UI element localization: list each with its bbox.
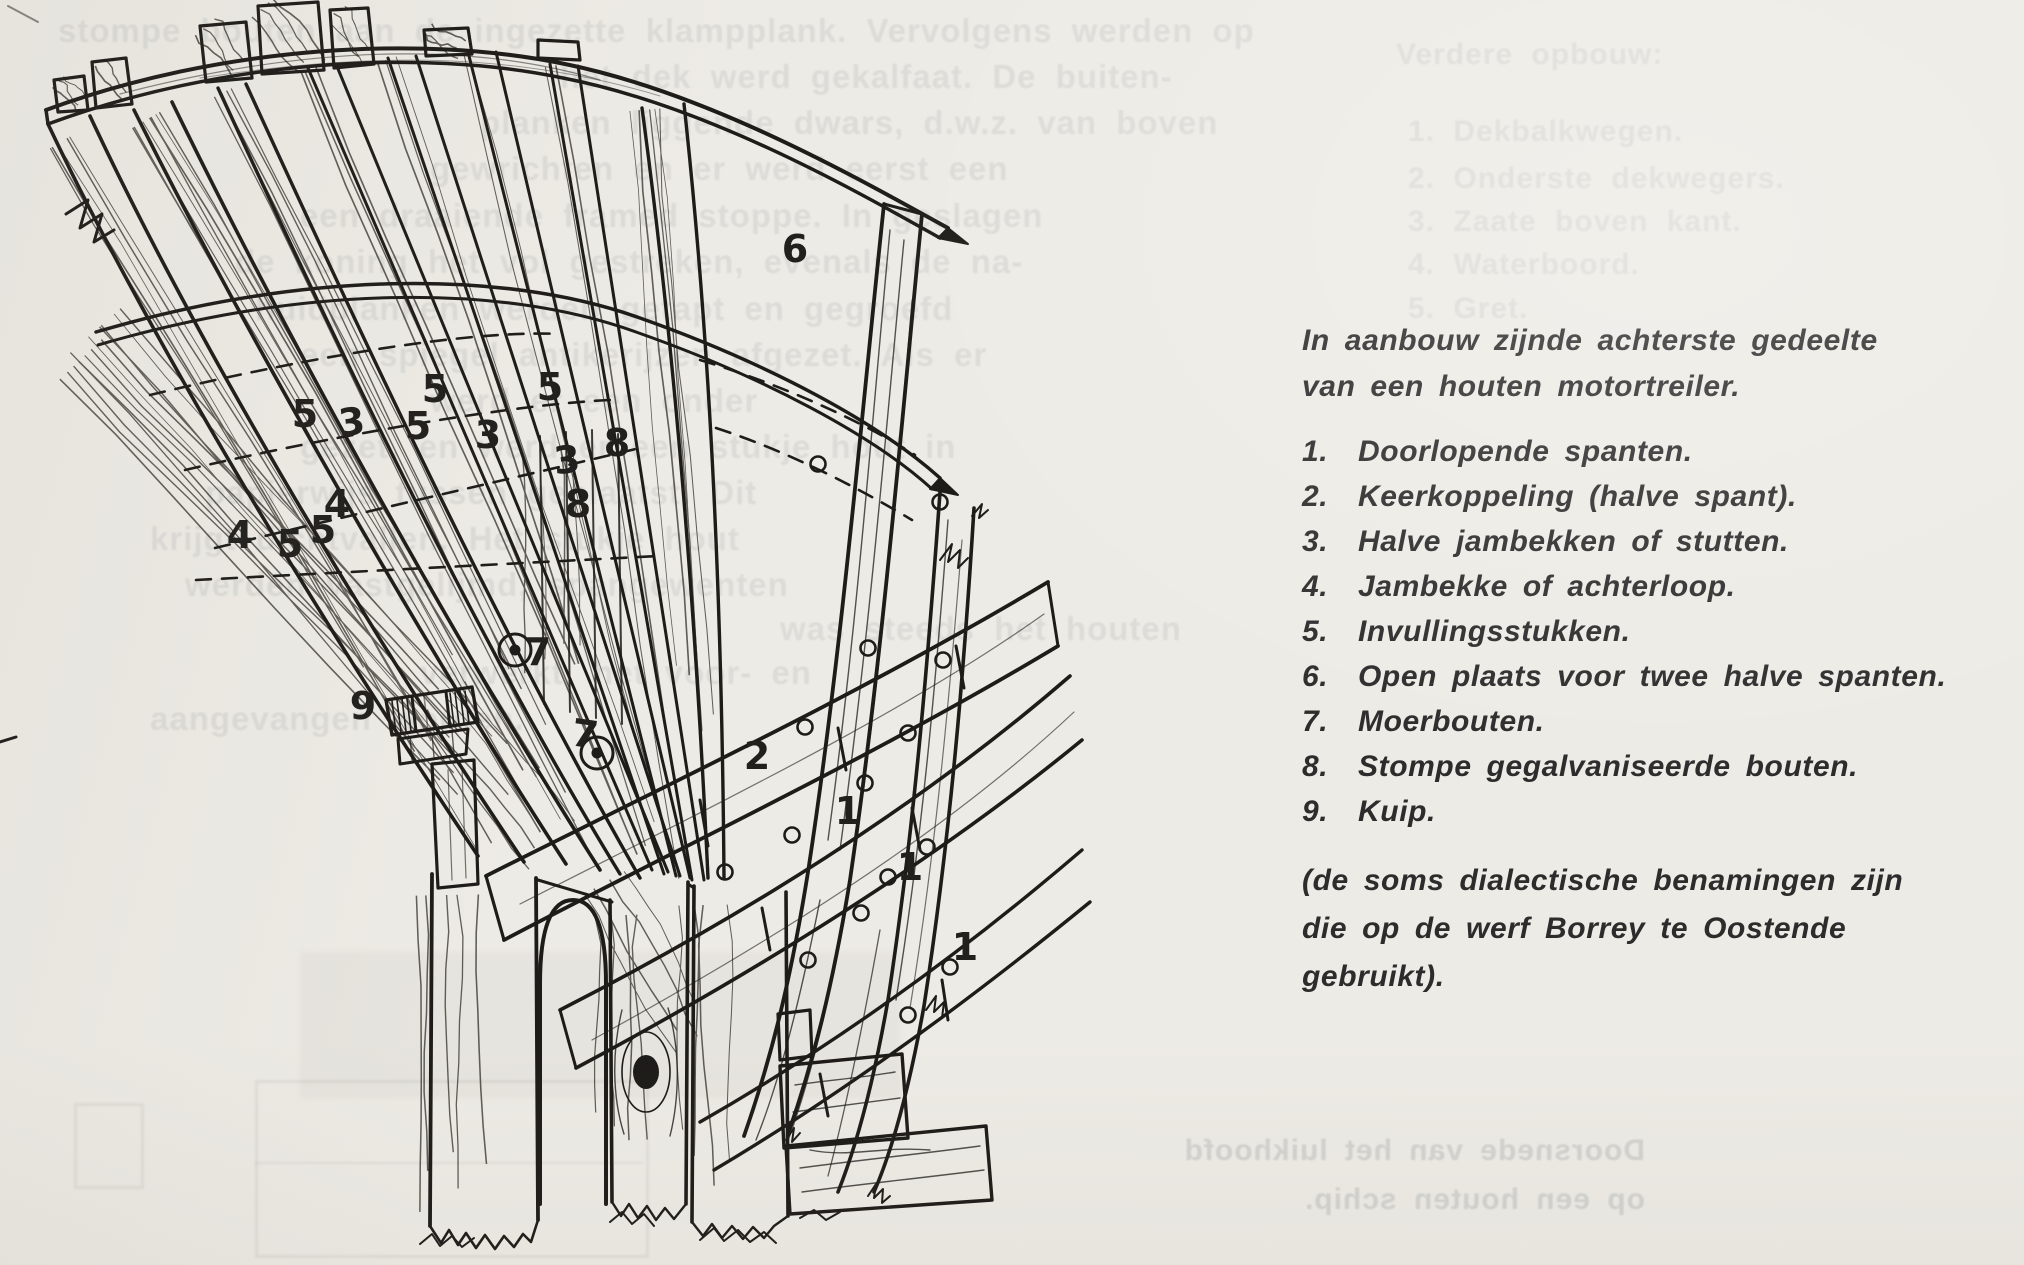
legend-list: 1.Doorlopende spanten. 2.Keerkoppeling (… bbox=[1302, 429, 1946, 834]
label-1: 1 bbox=[897, 845, 923, 889]
scan-scratch bbox=[8, 6, 38, 22]
legend-item: 1.Doorlopende spanten. bbox=[1302, 429, 1946, 474]
legend-item-text: Stompe gegalvaniseerde bouten. bbox=[1358, 744, 1858, 789]
legend-item-number: 7. bbox=[1302, 699, 1358, 744]
wood-grain-stroke bbox=[476, 894, 487, 1164]
wood-grain-stroke bbox=[626, 915, 632, 1140]
label-5: 5 bbox=[292, 392, 318, 436]
wood-grain-stroke bbox=[416, 896, 421, 1212]
legend-item-text: Open plaats voor twee halve spanten. bbox=[1358, 654, 1946, 699]
legend-item-number: 5. bbox=[1302, 609, 1358, 654]
legend-item-number: 1. bbox=[1302, 429, 1358, 474]
label-8: 8 bbox=[604, 421, 630, 465]
legend-item: 6.Open plaats voor twee halve spanten. bbox=[1302, 654, 1946, 699]
label-2: 2 bbox=[744, 734, 770, 778]
label-7: 7 bbox=[525, 630, 551, 674]
legend-item: 9.Kuip. bbox=[1302, 789, 1946, 834]
wood-grain-stroke bbox=[432, 24, 466, 41]
wood-grain-stroke bbox=[595, 916, 601, 1113]
frame-fan bbox=[48, 52, 724, 880]
caption-title-line: van een houten motortreiler. bbox=[1302, 364, 1946, 410]
scanned-book-page: stompe bouten aan de ingezette klampplan… bbox=[0, 0, 2024, 1265]
caption-note: (de soms dialectische benamingen zijn di… bbox=[1302, 857, 1946, 1001]
wood-grain-layer bbox=[50, 0, 733, 1212]
legend-item-number: 2. bbox=[1302, 474, 1358, 519]
caption-title-line: In aanbouw zijnde achterste gedeelte bbox=[1302, 318, 1946, 364]
label-3: 3 bbox=[475, 413, 501, 457]
ragged-fibres bbox=[786, 504, 988, 1203]
wood-grain-stroke bbox=[67, 138, 492, 843]
label-9: 9 bbox=[350, 684, 376, 728]
legend-item: 8.Stompe gegalvaniseerde bouten. bbox=[1302, 744, 1946, 789]
ground-squiggles bbox=[420, 1210, 840, 1247]
wood-grain-stroke bbox=[610, 880, 698, 1037]
figure-number-labels: 6 5 5 5 3 5 3 8 3 4 8 5 4 5 7 9 7 2 1 1 … bbox=[227, 227, 978, 969]
wood-grain-stroke bbox=[632, 915, 647, 1140]
label-1: 1 bbox=[835, 789, 861, 833]
legend-item: 4.Jambekke of achterloop. bbox=[1302, 564, 1946, 609]
wood-grain-stroke bbox=[699, 905, 715, 1186]
legend-item-number: 4. bbox=[1302, 564, 1358, 609]
legend-item-text: Keerkoppeling (halve spant). bbox=[1358, 474, 1797, 519]
wood-grain-stroke bbox=[445, 895, 453, 1152]
legend-item-text: Jambekke of achterloop. bbox=[1358, 564, 1736, 609]
label-5: 5 bbox=[537, 365, 563, 409]
label-5: 5 bbox=[405, 404, 431, 448]
wood-grain-stroke bbox=[424, 895, 428, 1171]
label-3: 3 bbox=[552, 437, 582, 483]
label-5: 5 bbox=[277, 522, 303, 566]
legend-item-number: 6. bbox=[1302, 654, 1358, 699]
legend-item-text: Doorlopende spanten. bbox=[1358, 429, 1693, 474]
legend-item: 2.Keerkoppeling (halve spant). bbox=[1302, 474, 1946, 519]
keel-blocks bbox=[778, 1010, 992, 1214]
wood-grain-stroke bbox=[677, 906, 683, 1130]
legend-item-number: 9. bbox=[1302, 789, 1358, 834]
label-6: 6 bbox=[782, 227, 808, 271]
margin-mark bbox=[0, 737, 16, 742]
legend-item: 7.Moerbouten. bbox=[1302, 699, 1946, 744]
caption-note-line: gebruikt). bbox=[1302, 953, 1946, 1001]
stern-timbers bbox=[430, 874, 788, 1249]
legend-item-number: 3. bbox=[1302, 519, 1358, 564]
label-8: 8 bbox=[565, 482, 591, 526]
label-1: 1 bbox=[952, 925, 978, 969]
legend-item-text: Halve jambekken of stutten. bbox=[1358, 519, 1789, 564]
legend-item: 5.Invullingsstukken. bbox=[1302, 609, 1946, 654]
legend-item-text: Moerbouten. bbox=[1358, 699, 1545, 744]
caption-note-line: (de soms dialectische benamingen zijn bbox=[1302, 857, 1946, 905]
label-5: 5 bbox=[310, 508, 336, 552]
structural-linework bbox=[0, 2, 1090, 1249]
wood-grain-stroke bbox=[85, 356, 450, 738]
wood-grain-stroke bbox=[231, 89, 546, 725]
label-4: 4 bbox=[227, 513, 253, 557]
legend-item-text: Kuip. bbox=[1358, 789, 1436, 834]
plank-butt-joints bbox=[700, 646, 964, 1116]
wood-grain-stroke bbox=[456, 895, 463, 1189]
legend-item: 3.Halve jambekken of stutten. bbox=[1302, 519, 1946, 564]
legend-item-number: 8. bbox=[1302, 744, 1358, 789]
label-3: 3 bbox=[336, 399, 367, 446]
caption-note-line: die op de werf Borrey te Oostende bbox=[1302, 905, 1946, 953]
wood-grain-stroke bbox=[727, 905, 733, 1161]
legend-item-text: Invullingsstukken. bbox=[1358, 609, 1631, 654]
figure-caption: In aanbouw zijnde achterste gedeelte van… bbox=[1302, 318, 1946, 1001]
wood-knot bbox=[633, 1055, 659, 1089]
